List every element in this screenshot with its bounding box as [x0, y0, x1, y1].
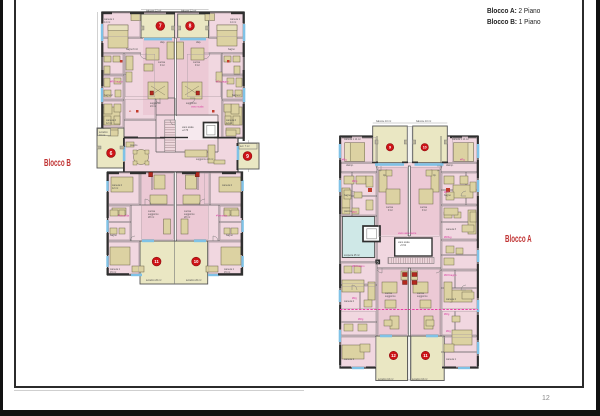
svg-text:terrazzo 16 m²: terrazzo 16 m² [378, 378, 394, 381]
svg-text:#Veranda: #Veranda [216, 214, 228, 218]
svg-text:#Rg: #Rg [446, 329, 451, 333]
svg-text:#Rif.bagno: #Rif.bagno [352, 264, 365, 268]
svg-text:#Rig: #Rig [358, 317, 364, 321]
svg-text:camera 3: camera 3 [446, 228, 457, 231]
svg-text:terrazzo 20 m²: terrazzo 20 m² [186, 279, 202, 282]
svg-text:terrazzo 20 m²: terrazzo 20 m² [146, 279, 162, 282]
svg-text:9 m²: 9 m² [422, 209, 427, 212]
svg-text:disp.: disp. [160, 41, 165, 44]
svg-text:9 m²: 9 m² [195, 64, 200, 67]
svg-text:disimp.: disimp. [346, 164, 354, 167]
svg-text:#Rig: #Rig [352, 179, 358, 183]
svg-text:disimp.: disimp. [446, 164, 454, 167]
svg-text:#Rif: #Rif [444, 190, 449, 194]
svg-text:bagno 2: bagno 2 [232, 94, 241, 97]
svg-text:vano ascensore: vano ascensore [398, 231, 417, 235]
svg-text:camera 2: camera 2 [344, 300, 355, 303]
svg-text:16 m²: 16 m² [99, 134, 105, 137]
svg-text:#Rig: #Rig [444, 312, 450, 316]
svg-text:piscina: piscina [344, 210, 352, 213]
svg-text:#Rg: #Rg [342, 158, 347, 162]
svg-text:10: 10 [194, 259, 199, 264]
svg-text:soggiorno: soggiorno [417, 295, 428, 298]
svg-text:6: 6 [110, 151, 113, 157]
svg-text:+5.52: +5.52 [400, 244, 407, 247]
svg-text:scoperta 25 m²: scoperta 25 m² [344, 254, 360, 257]
svg-text:soggiorno 22 m²: soggiorno 22 m² [196, 158, 213, 161]
svg-text:#Rif.bagno: #Rif.bagno [444, 273, 457, 277]
svg-text:camera 1: camera 1 [446, 358, 457, 361]
svg-text:bagno: bagno [228, 48, 235, 51]
svg-text:15 m²: 15 m² [224, 271, 230, 274]
svg-text:24 m²: 24 m² [150, 105, 156, 108]
svg-text:balcone 12 m²: balcone 12 m² [146, 10, 161, 13]
svg-text:12 m²: 12 m² [226, 122, 232, 125]
svg-text:28 m²: 28 m² [148, 216, 154, 219]
svg-text:#Rif: #Rif [352, 210, 357, 214]
svg-text:disp.: disp. [196, 41, 201, 44]
svg-text:rip.: rip. [433, 174, 437, 177]
svg-text:terr. 7 m²: terr. 7 m² [240, 145, 250, 148]
svg-text:14 m²: 14 m² [230, 21, 236, 24]
svg-text:soggiorno: soggiorno [385, 295, 396, 298]
svg-text:11: 11 [154, 259, 159, 264]
svg-text:9 m²: 9 m² [388, 209, 393, 212]
svg-text:15 m²: 15 m² [110, 271, 116, 274]
svg-text:bagno: bagno [110, 234, 117, 237]
svg-text:bagno: bagno [444, 194, 451, 197]
svg-text:bagno: bagno [344, 194, 351, 197]
svg-text:terrazzo 16 m²: terrazzo 16 m² [412, 378, 428, 381]
svg-text:camera 2: camera 2 [222, 184, 233, 187]
svg-text:camera 1 14 m²: camera 1 14 m² [452, 138, 469, 141]
svg-text:camera 1 14 m²: camera 1 14 m² [344, 138, 361, 141]
svg-text:10: 10 [423, 145, 427, 149]
svg-text:9 m²: 9 m² [160, 64, 165, 67]
svg-text:balcone 10 m²: balcone 10 m² [416, 120, 431, 123]
svg-text:rip.: rip. [383, 174, 387, 177]
svg-text:12: 12 [391, 353, 396, 358]
svg-text:bagno 2: bagno 2 [104, 94, 113, 97]
svg-text:#Rifug: #Rifug [444, 235, 452, 239]
svg-text:#Veranda: #Veranda [118, 214, 130, 218]
svg-text:8: 8 [189, 24, 192, 30]
svg-text:11: 11 [423, 353, 428, 358]
svg-text:bagno 6 m²: bagno 6 m² [126, 48, 138, 51]
svg-text:balcone 12 m²: balcone 12 m² [181, 10, 196, 13]
svg-text:28 m²: 28 m² [184, 216, 190, 219]
svg-text:12 m²: 12 m² [112, 187, 118, 190]
svg-text:pranzo: pranzo [130, 144, 138, 147]
svg-text:camera 2: camera 2 [446, 298, 457, 301]
svg-text:7: 7 [159, 24, 162, 30]
svg-text:#Rg: #Rg [352, 296, 357, 300]
svg-text:14 m²: 14 m² [104, 21, 110, 24]
svg-text:+2.76: +2.76 [182, 129, 189, 132]
svg-text:12 m²: 12 m² [106, 122, 112, 125]
svg-text:vano scala: vano scala [191, 105, 204, 109]
svg-text:al.: al. [129, 110, 132, 113]
svg-text:camera 1: camera 1 [344, 358, 355, 361]
svg-text:bagno: bagno [226, 234, 233, 237]
svg-text:#Rif.bagno: #Rif.bagno [110, 80, 123, 84]
svg-text:#Rif.bagno: #Rif.bagno [216, 80, 229, 84]
svg-text:9: 9 [246, 154, 249, 160]
svg-text:balcone 10 m²: balcone 10 m² [376, 120, 391, 123]
svg-text:#Rg: #Rg [460, 158, 465, 162]
